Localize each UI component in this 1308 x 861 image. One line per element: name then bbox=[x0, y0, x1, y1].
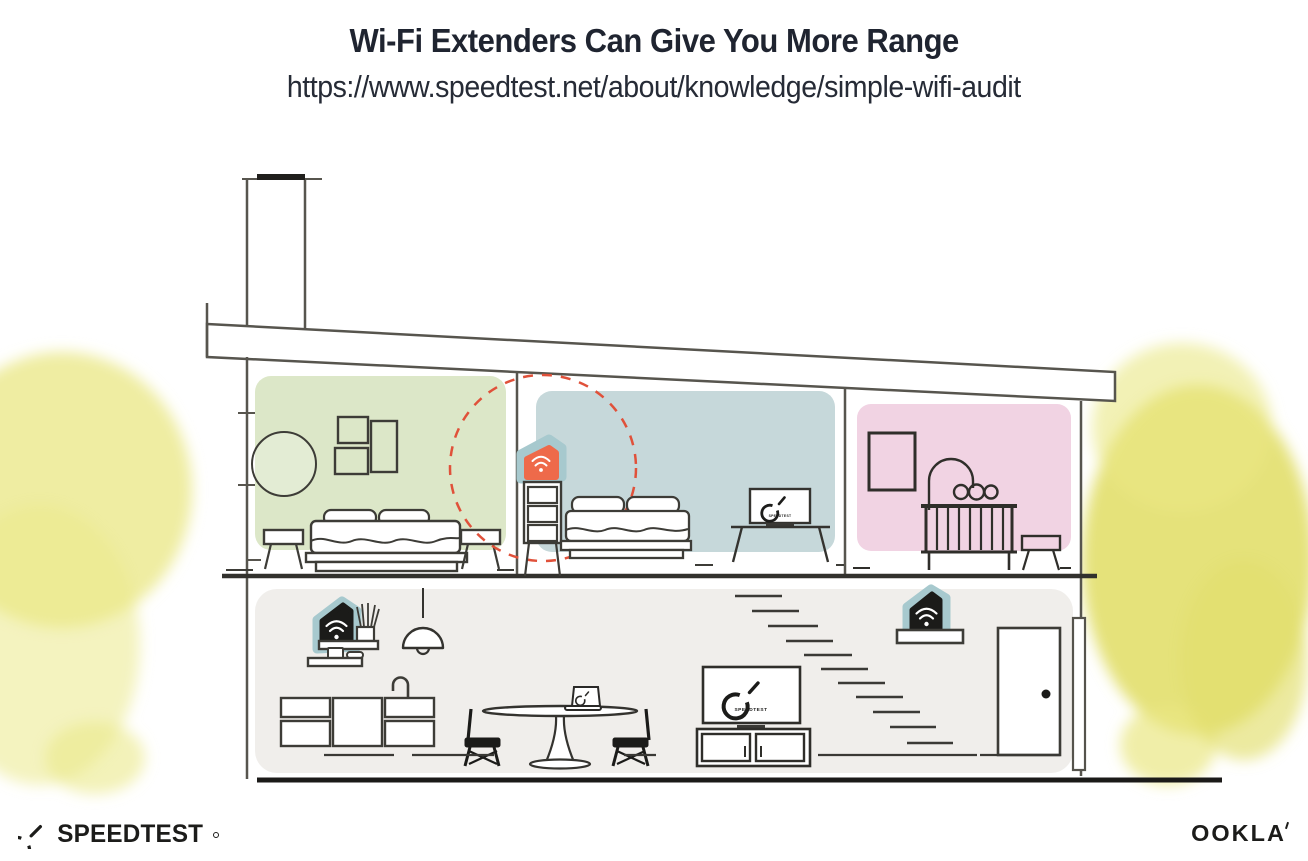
cup bbox=[328, 648, 343, 658]
source-url: https://www.speedtest.net/about/knowledg… bbox=[0, 69, 1308, 105]
ookla-wordmark: OOKLA bbox=[1191, 820, 1286, 847]
bed bbox=[561, 497, 691, 558]
speedtest-gauge-icon bbox=[18, 819, 48, 849]
living-tv-label: SPEEDTEST bbox=[734, 707, 767, 713]
living-room-tv: SPEEDTEST bbox=[697, 667, 810, 766]
header: Wi-Fi Extenders Can Give You More Range … bbox=[0, 22, 1308, 105]
wall-shelf bbox=[897, 630, 963, 643]
chimney-cap bbox=[257, 174, 305, 180]
chimney bbox=[242, 174, 322, 330]
wall-trim bbox=[1073, 618, 1085, 770]
speedtest-wordmark: SPEEDTEST bbox=[57, 820, 203, 849]
infographic-page: Wi-Fi Extenders Can Give You More Range … bbox=[0, 0, 1308, 861]
watercolor-blob-left bbox=[0, 352, 192, 794]
bedroom-tv-label: SPEEDTEST bbox=[769, 514, 792, 518]
wall-mirror bbox=[252, 432, 316, 496]
nursery-wash bbox=[857, 404, 1071, 551]
door bbox=[998, 628, 1060, 755]
wall-shelf bbox=[308, 658, 362, 666]
door-knob bbox=[1042, 690, 1051, 699]
watercolor-blob-right bbox=[1082, 343, 1308, 785]
page-title: Wi-Fi Extenders Can Give You More Range bbox=[349, 22, 958, 60]
ookla-logo: OOKLA bbox=[1192, 820, 1288, 847]
house-illustration: SPEEDTEST bbox=[0, 0, 1308, 861]
registered-mark bbox=[213, 832, 219, 838]
speedtest-logo: SPEEDTEST bbox=[18, 819, 219, 849]
trademark-tick bbox=[1285, 822, 1289, 829]
footer: SPEEDTEST OOKLA bbox=[0, 809, 1308, 853]
